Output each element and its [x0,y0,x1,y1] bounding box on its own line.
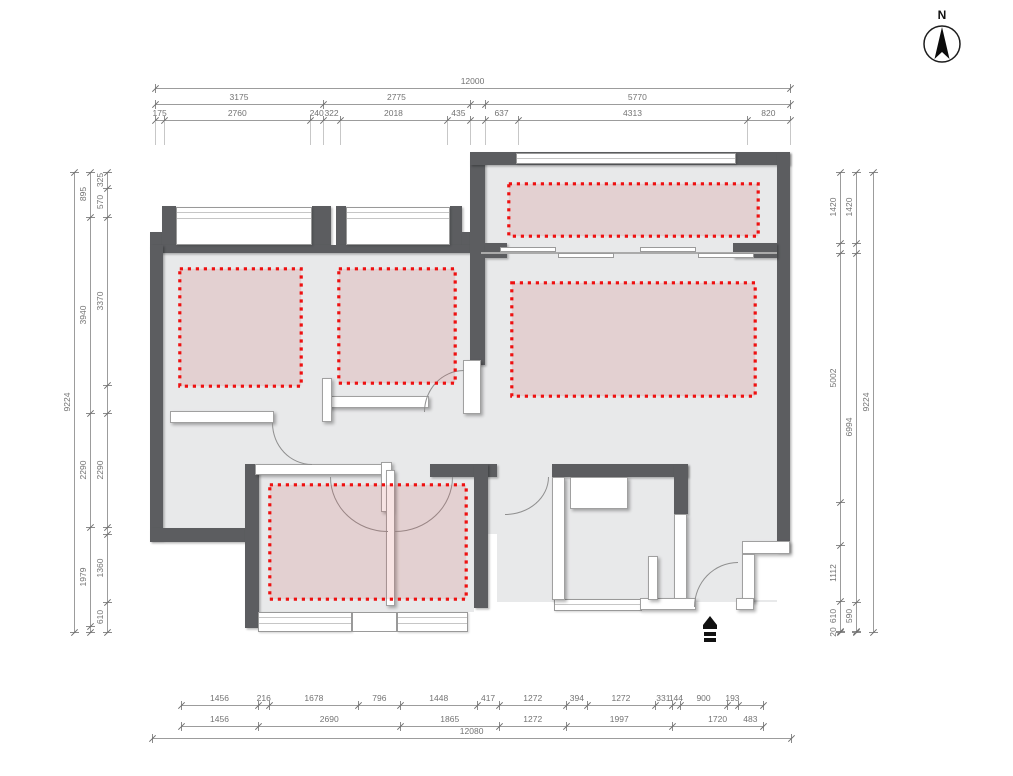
north-label: N [920,8,964,22]
wall-segment [245,464,259,628]
sliding-door-panel [500,247,556,252]
exterior-cutout [755,554,795,600]
zone-living-room[interactable] [510,281,757,398]
dim-label: 1420 [828,198,838,217]
partition [325,396,429,408]
dim-extension [518,121,519,145]
dimension-line [873,172,874,632]
compass: N [920,8,964,72]
dim-label: 325 [95,173,105,187]
dim-label: 483 [743,714,757,724]
dim-label: 20 [828,627,838,636]
partition-step [742,554,755,602]
dim-extension [470,121,471,145]
dim-label: 2290 [78,461,88,480]
dim-label: 1360 [95,558,105,577]
dimension-line [155,104,790,105]
window [176,207,312,245]
dim-label: 1112 [828,564,838,582]
partition [552,477,565,600]
dim-label: 12000 [461,76,485,86]
dim-label: 240 [310,108,324,118]
dim-label: 394 [570,693,584,703]
dim-extension [485,121,486,145]
dim-label: 3175 [230,92,249,102]
dim-label: 12080 [460,726,484,736]
dim-label: 6994 [844,418,854,437]
dim-label: 216 [257,693,271,703]
dim-extension [164,121,165,145]
dim-label: 9224 [62,393,72,412]
dim-label: 2690 [320,714,339,724]
dim-label: 5002 [828,368,838,387]
wall-segment [150,245,482,253]
dim-label: 1997 [610,714,629,724]
dim-label: 2760 [228,108,247,118]
dim-label: 322 [324,108,338,118]
dim-extension [310,121,311,145]
dim-label: 3370 [95,291,105,310]
dim-label: 1720 [708,714,727,724]
partition-step [742,541,790,554]
dim-label: 5770 [628,92,647,102]
dim-label: 2018 [384,108,403,118]
dim-label: 1456 [210,714,229,724]
entrance-marker-icon [702,616,718,648]
dim-label: 900 [696,693,710,703]
partition-closet [570,477,628,509]
dim-label: 610 [828,609,838,623]
window [397,612,468,632]
partition [255,464,383,475]
wall-segment [336,206,346,247]
partition [674,514,687,602]
wall-right-exterior [777,152,790,552]
dim-label: 417 [481,693,495,703]
dim-extension [790,121,791,145]
dim-label: 1979 [78,567,88,586]
dim-label: 175 [153,108,167,118]
dim-label: 193 [725,693,739,703]
dimension-line [152,738,791,739]
floor-plan-canvas: N [0,0,1013,776]
dim-label: 590 [844,609,854,623]
wall-segment [312,206,331,247]
zone-bedroom-middle[interactable] [337,267,457,385]
dimension-line [155,120,790,121]
sliding-door-panel [640,247,696,252]
dim-label: 1272 [523,693,542,703]
wall-pier [352,612,397,632]
window [346,207,450,245]
dim-extension [447,121,448,145]
wall-segment [162,206,176,247]
dim-label: 1456 [210,693,229,703]
dim-label: 1678 [304,693,323,703]
north-arrow-icon [920,23,964,67]
dimension-line [90,172,91,632]
dim-extension [747,121,748,145]
wall-segment [474,464,488,608]
wall-left-exterior [150,245,163,540]
dim-label: 2290 [95,461,105,480]
dim-label: 610 [95,610,105,624]
partition [463,360,481,414]
dim-extension [323,121,324,145]
dim-label: 1272 [611,693,630,703]
partition [322,378,332,422]
dimension-line [155,88,790,89]
dim-label: 796 [372,693,386,703]
wall-segment [674,464,688,514]
partition [736,598,754,610]
sliding-door-panel [558,253,614,258]
window-bath [554,599,642,611]
dim-label: 820 [761,108,775,118]
window [258,612,352,632]
wall-segment [150,528,250,542]
partition [170,411,274,423]
dim-label: 1272 [523,714,542,724]
wall-segment [552,464,688,477]
dim-label: 895 [78,187,88,201]
wall-segment [470,158,485,365]
sliding-door-panel [698,253,754,258]
zone-balcony[interactable] [507,182,760,238]
dim-label: 1865 [440,714,459,724]
dim-label: 144 [669,693,683,703]
wall-segment [450,206,462,247]
dim-extension [155,121,156,145]
zone-bedroom-left[interactable] [178,267,303,388]
dim-label: 4313 [623,108,642,118]
dim-label: 570 [95,195,105,209]
dim-label: 1420 [844,198,854,217]
dimension-line [74,172,75,632]
door-leaf [648,556,658,600]
dim-label: 9224 [861,393,871,412]
dim-label: 637 [494,108,508,118]
dimension-line [107,172,108,632]
dim-label: 1448 [429,693,448,703]
dim-label: 3940 [78,305,88,324]
dim-extension [340,121,341,145]
dim-label: 435 [451,108,465,118]
window-balcony [516,153,736,164]
dim-label: 2775 [387,92,406,102]
zone-bottom-rooms[interactable] [268,483,468,601]
